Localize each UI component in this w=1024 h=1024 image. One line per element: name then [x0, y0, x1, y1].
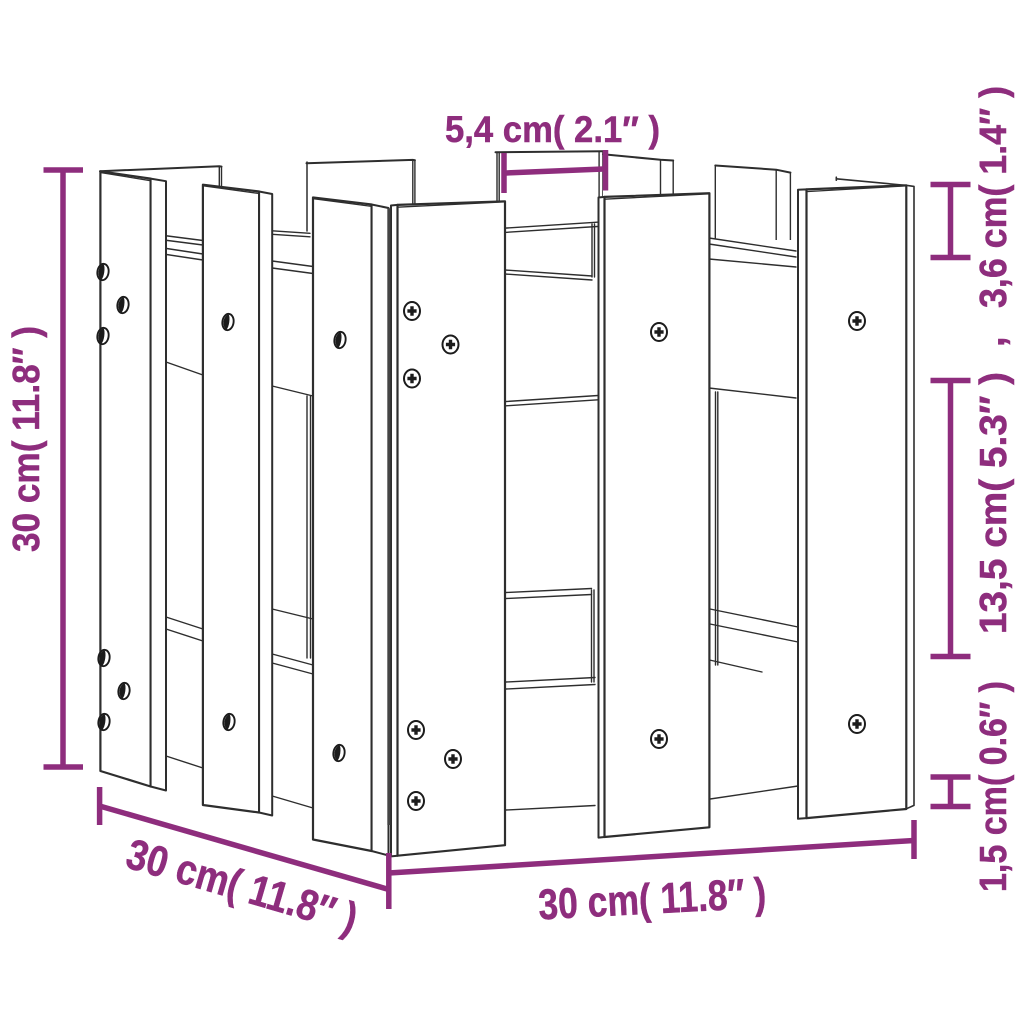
svg-text:13,5 cm( 5.3″ ): 13,5 cm( 5.3″ ) — [973, 372, 1015, 634]
svg-text:,: , — [971, 336, 1013, 347]
svg-text:1,5 cm( 0.6″ ): 1,5 cm( 0.6″ ) — [973, 681, 1015, 892]
svg-text:3,6 cm( 1.4″ ): 3,6 cm( 1.4″ ) — [973, 86, 1015, 308]
svg-text:30 cm( 11.8″ ): 30 cm( 11.8″ ) — [6, 326, 48, 552]
svg-text:5,4 cm( 2.1″ ): 5,4 cm( 2.1″ ) — [445, 109, 660, 150]
